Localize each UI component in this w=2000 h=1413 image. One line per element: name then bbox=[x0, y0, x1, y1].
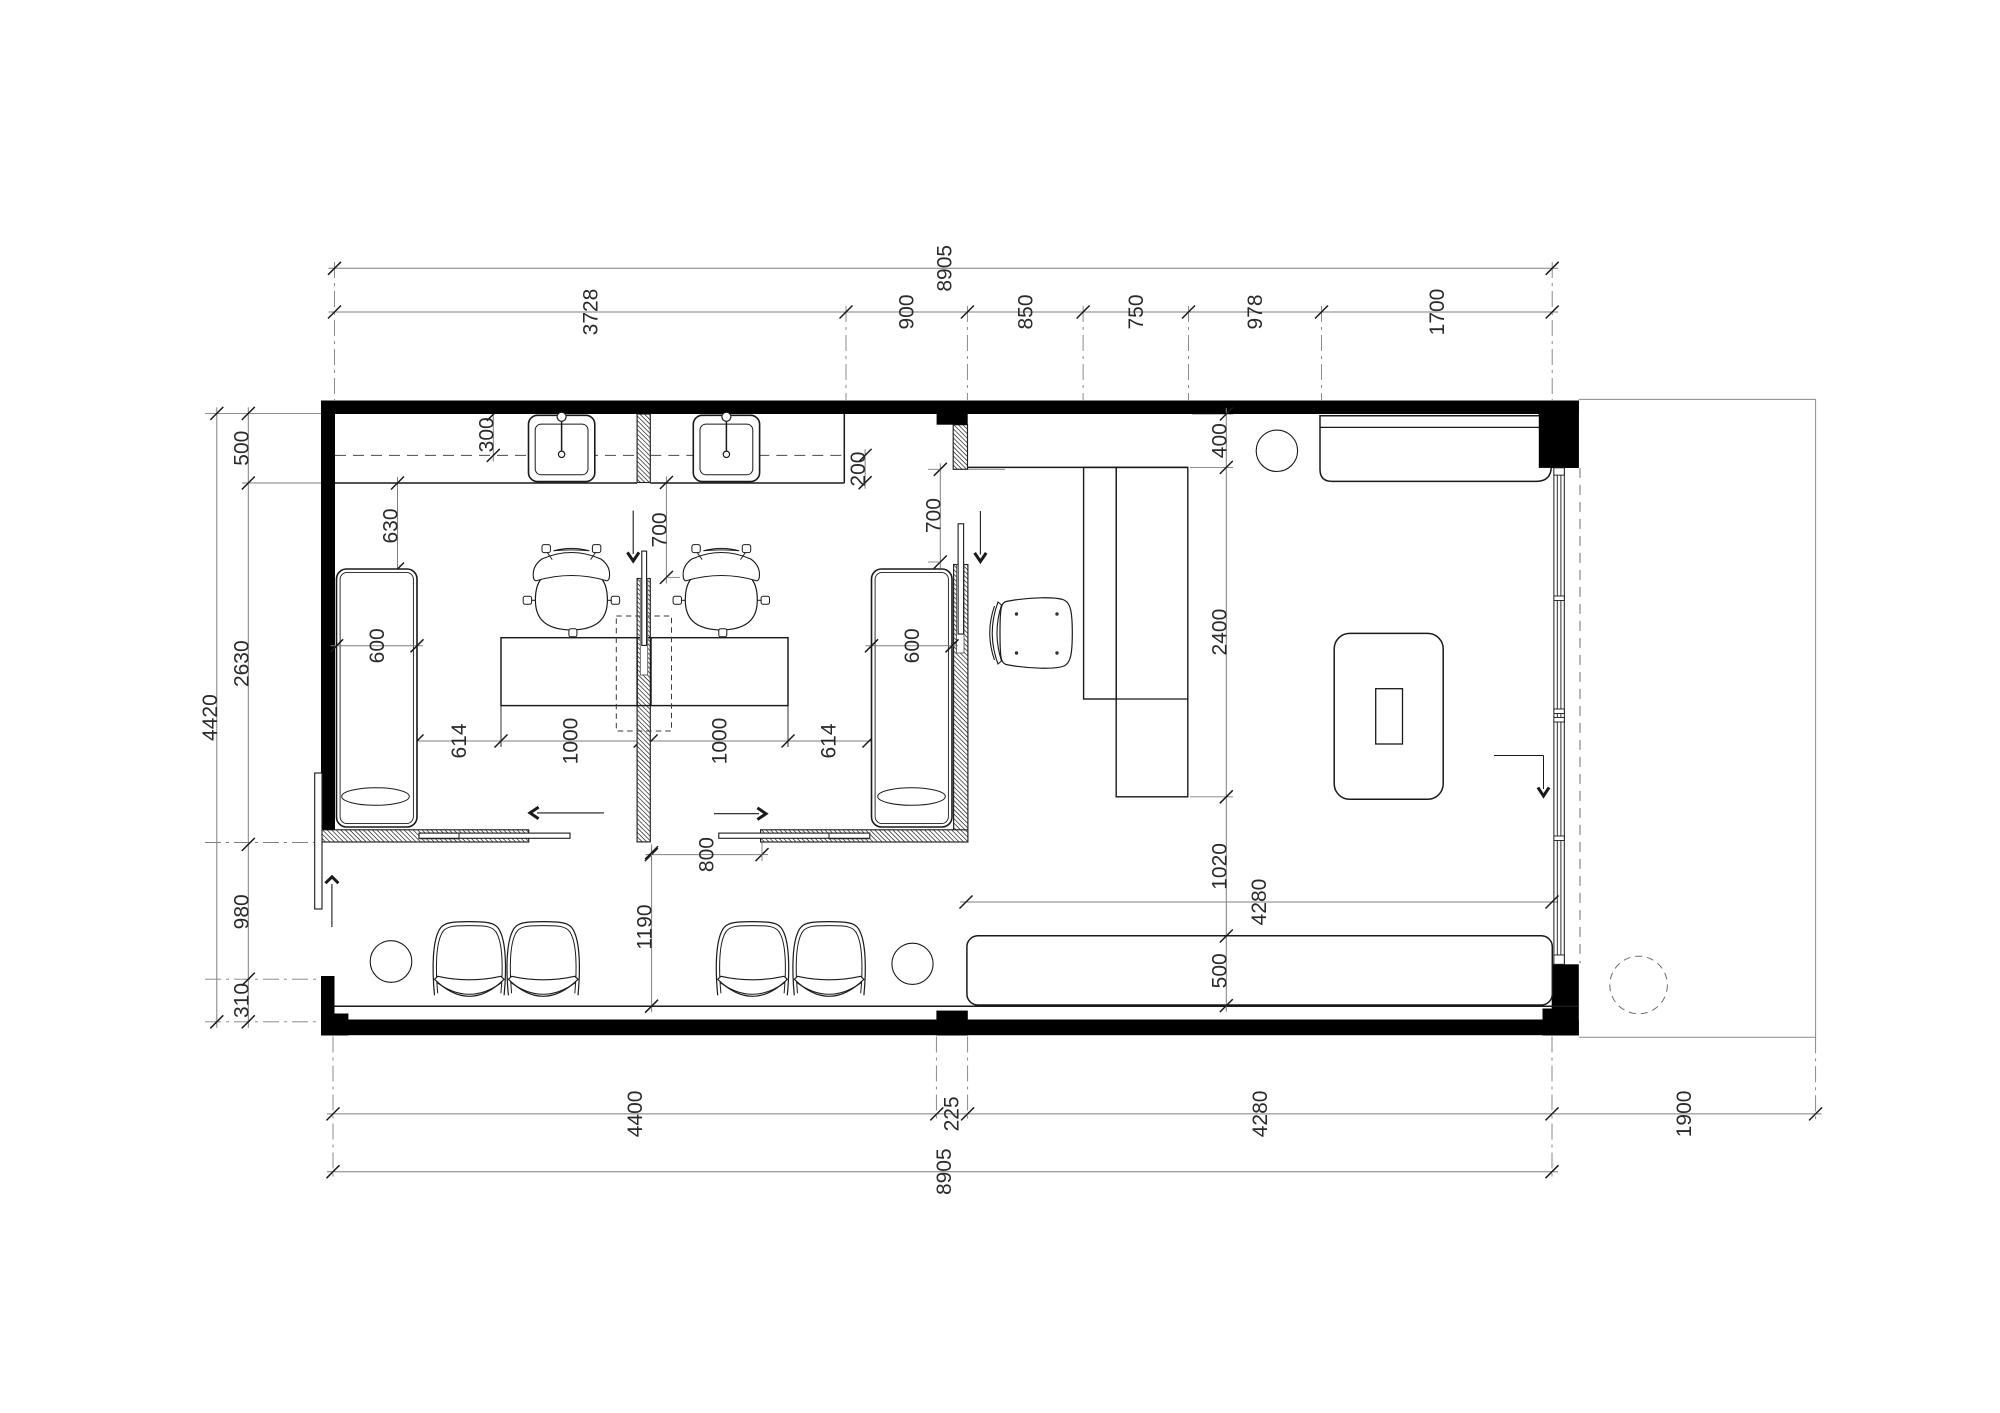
svg-text:850: 850 bbox=[1014, 294, 1037, 329]
svg-text:700: 700 bbox=[648, 512, 671, 547]
svg-text:630: 630 bbox=[380, 508, 403, 543]
svg-text:1900: 1900 bbox=[1673, 1091, 1696, 1138]
svg-text:300: 300 bbox=[475, 417, 498, 452]
svg-text:200: 200 bbox=[847, 452, 870, 487]
svg-text:614: 614 bbox=[448, 723, 471, 758]
svg-text:500: 500 bbox=[230, 431, 253, 466]
svg-text:1000: 1000 bbox=[709, 718, 732, 765]
svg-text:4420: 4420 bbox=[199, 694, 222, 741]
svg-text:600: 600 bbox=[901, 628, 924, 663]
svg-text:8905: 8905 bbox=[933, 1148, 956, 1195]
svg-text:4280: 4280 bbox=[1249, 1091, 1272, 1138]
svg-text:600: 600 bbox=[366, 628, 389, 663]
svg-text:3728: 3728 bbox=[579, 289, 602, 336]
svg-text:1190: 1190 bbox=[634, 904, 657, 949]
svg-text:1020: 1020 bbox=[1208, 843, 1231, 890]
svg-text:8905: 8905 bbox=[934, 245, 957, 292]
svg-text:225: 225 bbox=[940, 1096, 963, 1131]
svg-text:4400: 4400 bbox=[624, 1091, 647, 1138]
svg-text:700: 700 bbox=[922, 498, 945, 533]
svg-text:980: 980 bbox=[230, 894, 253, 929]
svg-text:2400: 2400 bbox=[1208, 609, 1231, 656]
svg-text:310: 310 bbox=[230, 983, 253, 1018]
svg-text:614: 614 bbox=[818, 723, 841, 758]
svg-text:800: 800 bbox=[696, 837, 719, 872]
svg-text:4280: 4280 bbox=[1248, 879, 1271, 926]
svg-text:2630: 2630 bbox=[230, 640, 253, 687]
svg-text:900: 900 bbox=[896, 294, 919, 329]
svg-text:978: 978 bbox=[1244, 294, 1267, 329]
svg-text:500: 500 bbox=[1208, 953, 1231, 988]
svg-text:750: 750 bbox=[1125, 294, 1148, 329]
svg-text:1000: 1000 bbox=[560, 718, 583, 765]
svg-text:1700: 1700 bbox=[1426, 289, 1449, 336]
svg-text:400: 400 bbox=[1208, 423, 1231, 458]
